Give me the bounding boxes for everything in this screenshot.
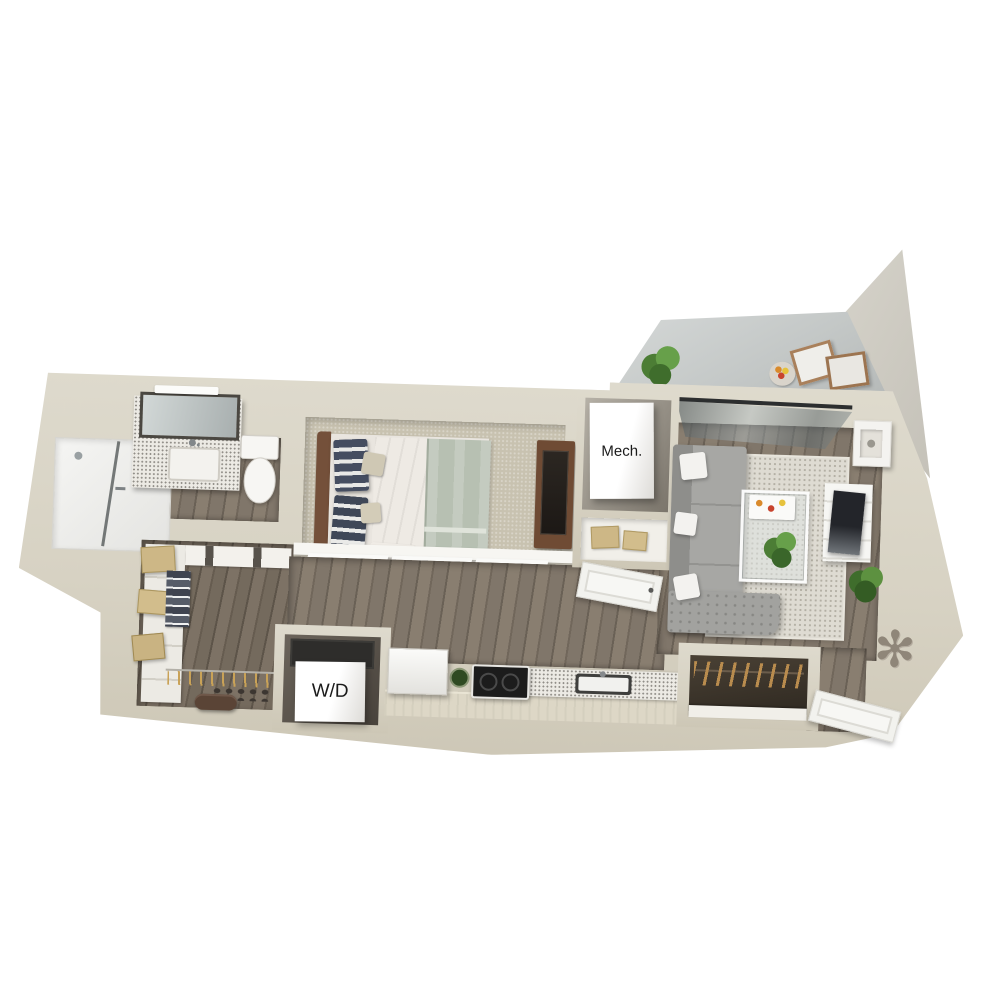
coffee-table-tray [749,495,796,520]
shower-handle-icon [115,487,125,490]
folded-clothes [165,571,191,628]
stacked-washer-dryer: W/D [295,661,366,722]
nook-box [622,530,648,551]
sage-blanket [423,439,491,561]
cooktop-stove [471,664,530,700]
storage-box [140,545,175,573]
storage-box [137,589,169,615]
sofa-throw-pillow [679,452,708,481]
vanity-mirror [139,392,240,441]
sunburst-wall-art: ✻ [868,621,922,679]
mech-hvac-unit: Mech. [590,403,654,499]
storage-box [131,633,165,662]
mech-label: Mech. [601,442,642,459]
coffee-table-plant [759,529,800,572]
balcony-lounge-chair [825,351,869,390]
laundry-label: W/D [311,680,348,703]
nook-box [591,526,620,549]
tan-accent-pillow [360,502,381,523]
sofa-throw-pillow [673,511,698,536]
sofa-throw-pillow [673,573,701,601]
vanity-sink [168,447,221,483]
floorplan-scene: Mech. ✻ [0,0,1000,1000]
refrigerator [387,648,448,696]
kitchen-sink [575,673,632,695]
wall-cube-shelf [852,420,891,467]
toilet-tank [240,435,279,460]
duffel-bag [194,693,236,710]
closet-top-shelf [185,545,292,568]
apartment-unit: Mech. ✻ [11,372,974,832]
living-room-tv [828,490,866,555]
tan-accent-pillow [361,451,386,476]
coat-hangers [693,661,804,688]
bedroom-tv [540,450,569,535]
living-potted-plant [844,564,885,605]
